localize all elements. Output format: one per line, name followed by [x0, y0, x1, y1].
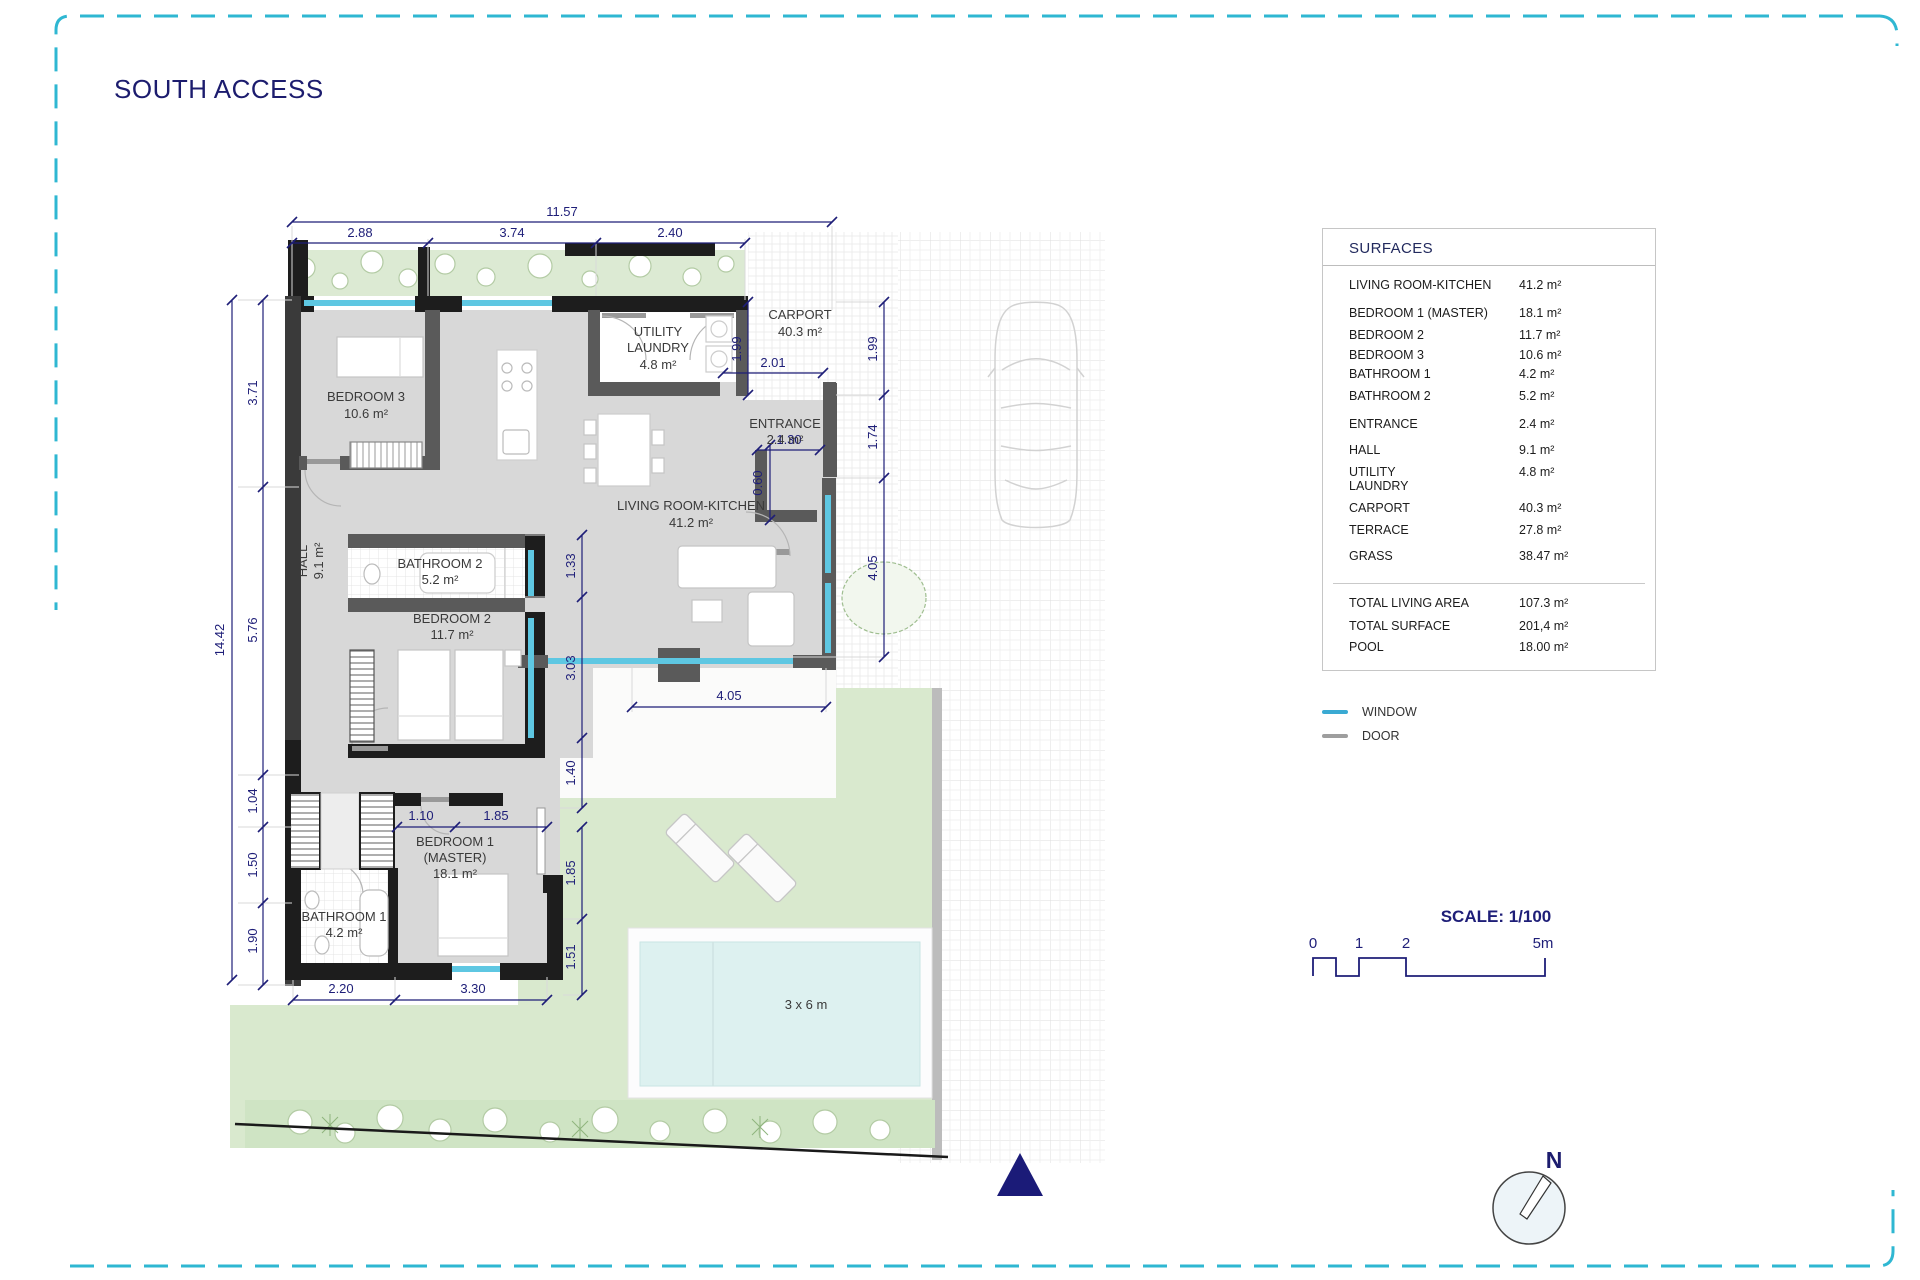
svg-text:2.40: 2.40 — [657, 225, 682, 240]
room-label-living: LIVING ROOM-KITCHEN — [617, 498, 765, 513]
room-label-entrance: ENTRANCE — [749, 416, 821, 431]
svg-text:4.05: 4.05 — [716, 688, 741, 703]
svg-text:1.90: 1.90 — [245, 928, 260, 953]
svg-text:1.50: 1.50 — [245, 852, 260, 877]
room-label-bedroom1: BEDROOM 1 — [416, 834, 494, 849]
floor-plan: 3 x 6 m — [170, 150, 1130, 1240]
compass: N — [1478, 1128, 1612, 1262]
room-label-bedroom2: BEDROOM 2 — [413, 611, 491, 626]
table-row: BATHROOM 25.2 m² — [1349, 389, 1655, 403]
svg-text:11.57: 11.57 — [546, 204, 578, 219]
pool: 3 x 6 m — [628, 928, 932, 1098]
svg-text:(MASTER): (MASTER) — [424, 850, 487, 865]
svg-text:41.2 m²: 41.2 m² — [669, 515, 714, 530]
room-label-bathroom2: BATHROOM 2 — [398, 556, 483, 571]
svg-text:4.05: 4.05 — [865, 555, 880, 580]
svg-text:1.85: 1.85 — [563, 860, 578, 885]
page-title: SOUTH ACCESS — [114, 74, 324, 105]
legend-door: DOOR — [1322, 724, 1417, 748]
svg-text:1.85: 1.85 — [483, 808, 508, 823]
svg-text:1.40: 1.40 — [563, 760, 578, 785]
svg-text:5.76: 5.76 — [245, 617, 260, 642]
room-label-hall: HALL — [295, 545, 310, 578]
table-row: TOTAL SURFACE201,4 m² — [1349, 619, 1645, 633]
table-row: GRASS38.47 m² — [1349, 549, 1655, 563]
svg-text:3.71: 3.71 — [245, 380, 260, 405]
legend: WINDOW DOOR — [1322, 700, 1417, 748]
svg-text:5.2 m²: 5.2 m² — [422, 572, 460, 587]
table-row: TOTAL LIVING AREA107.3 m² — [1349, 596, 1645, 610]
legend-window: WINDOW — [1322, 700, 1417, 724]
svg-text:1.99: 1.99 — [865, 336, 880, 361]
svg-text:1.99: 1.99 — [729, 336, 744, 361]
garden-strip-north — [292, 250, 745, 296]
table-row: BEDROOM 211.7 m² — [1349, 328, 1655, 342]
surfaces-table: SURFACES LIVING ROOM-KITCHEN41.2 m² BEDR… — [1322, 228, 1656, 671]
svg-text:1.51: 1.51 — [563, 944, 578, 969]
svg-text:1.10: 1.10 — [408, 808, 433, 823]
table-row: POOL18.00 m² — [1349, 640, 1645, 654]
boundary-wall — [932, 688, 942, 1160]
svg-text:2.4 m²: 2.4 m² — [767, 432, 805, 447]
window-line-icon — [1322, 710, 1348, 714]
table-row: BEDROOM 310.6 m² — [1349, 348, 1655, 362]
svg-text:LAUNDRY: LAUNDRY — [627, 340, 689, 355]
table-row: CARPORT40.3 m² — [1349, 501, 1655, 515]
table-row: UTILITY LAUNDRY4.8 m² — [1349, 465, 1655, 493]
svg-text:9.1 m²: 9.1 m² — [311, 542, 326, 580]
svg-text:3.74: 3.74 — [499, 225, 524, 240]
table-row: BATHROOM 14.2 m² — [1349, 367, 1655, 381]
garden-strip-south — [235, 1100, 948, 1157]
svg-text:10.6 m²: 10.6 m² — [344, 406, 389, 421]
table-row: LIVING ROOM-KITCHEN41.2 m² — [1349, 278, 1655, 292]
table-row: BEDROOM 1 (MASTER)18.1 m² — [1349, 306, 1655, 320]
svg-text:4.2 m²: 4.2 m² — [326, 925, 364, 940]
table-row: TERRACE27.8 m² — [1349, 523, 1655, 537]
north-label: N — [1546, 1147, 1563, 1173]
svg-text:2.88: 2.88 — [347, 225, 372, 240]
svg-text:5m: 5m — [1533, 935, 1554, 952]
svg-text:4.8 m²: 4.8 m² — [640, 357, 678, 372]
svg-text:1: 1 — [1355, 935, 1363, 952]
scale-title: SCALE: 1/100 — [1441, 907, 1552, 926]
svg-text:0.60: 0.60 — [750, 470, 765, 495]
svg-text:40.3 m²: 40.3 m² — [778, 324, 823, 339]
svg-text:1.33: 1.33 — [563, 553, 578, 578]
svg-text:11.7 m²: 11.7 m² — [430, 627, 474, 642]
svg-text:2: 2 — [1402, 935, 1410, 952]
svg-text:3.30: 3.30 — [460, 981, 485, 996]
svg-text:18.1 m²: 18.1 m² — [433, 866, 478, 881]
svg-text:2.01: 2.01 — [760, 355, 785, 370]
pool-label: 3 x 6 m — [785, 997, 828, 1012]
svg-text:3.03: 3.03 — [563, 655, 578, 680]
room-label-utility: UTILITY — [634, 324, 683, 339]
svg-text:0: 0 — [1309, 935, 1317, 952]
surfaces-header: SURFACES — [1323, 229, 1655, 266]
svg-text:1.04: 1.04 — [245, 788, 260, 813]
room-label-carport: CARPORT — [768, 307, 831, 322]
scale-bar: SCALE: 1/100 0 1 2 5m — [1290, 895, 1600, 990]
svg-text:1.74: 1.74 — [865, 424, 880, 449]
plan-sheet: SOUTH ACCESS — [0, 0, 1920, 1280]
surfaces-totals: TOTAL LIVING AREA107.3 m² TOTAL SURFACE2… — [1333, 583, 1645, 656]
closets — [290, 793, 394, 869]
room-label-bedroom3: BEDROOM 3 — [327, 389, 405, 404]
svg-text:2.20: 2.20 — [328, 981, 353, 996]
table-row: ENTRANCE2.4 m² — [1349, 417, 1655, 431]
svg-text:14.42: 14.42 — [212, 624, 227, 657]
door-line-icon — [1322, 734, 1348, 738]
room-label-bathroom1: BATHROOM 1 — [302, 909, 387, 924]
table-row: HALL9.1 m² — [1349, 443, 1655, 457]
